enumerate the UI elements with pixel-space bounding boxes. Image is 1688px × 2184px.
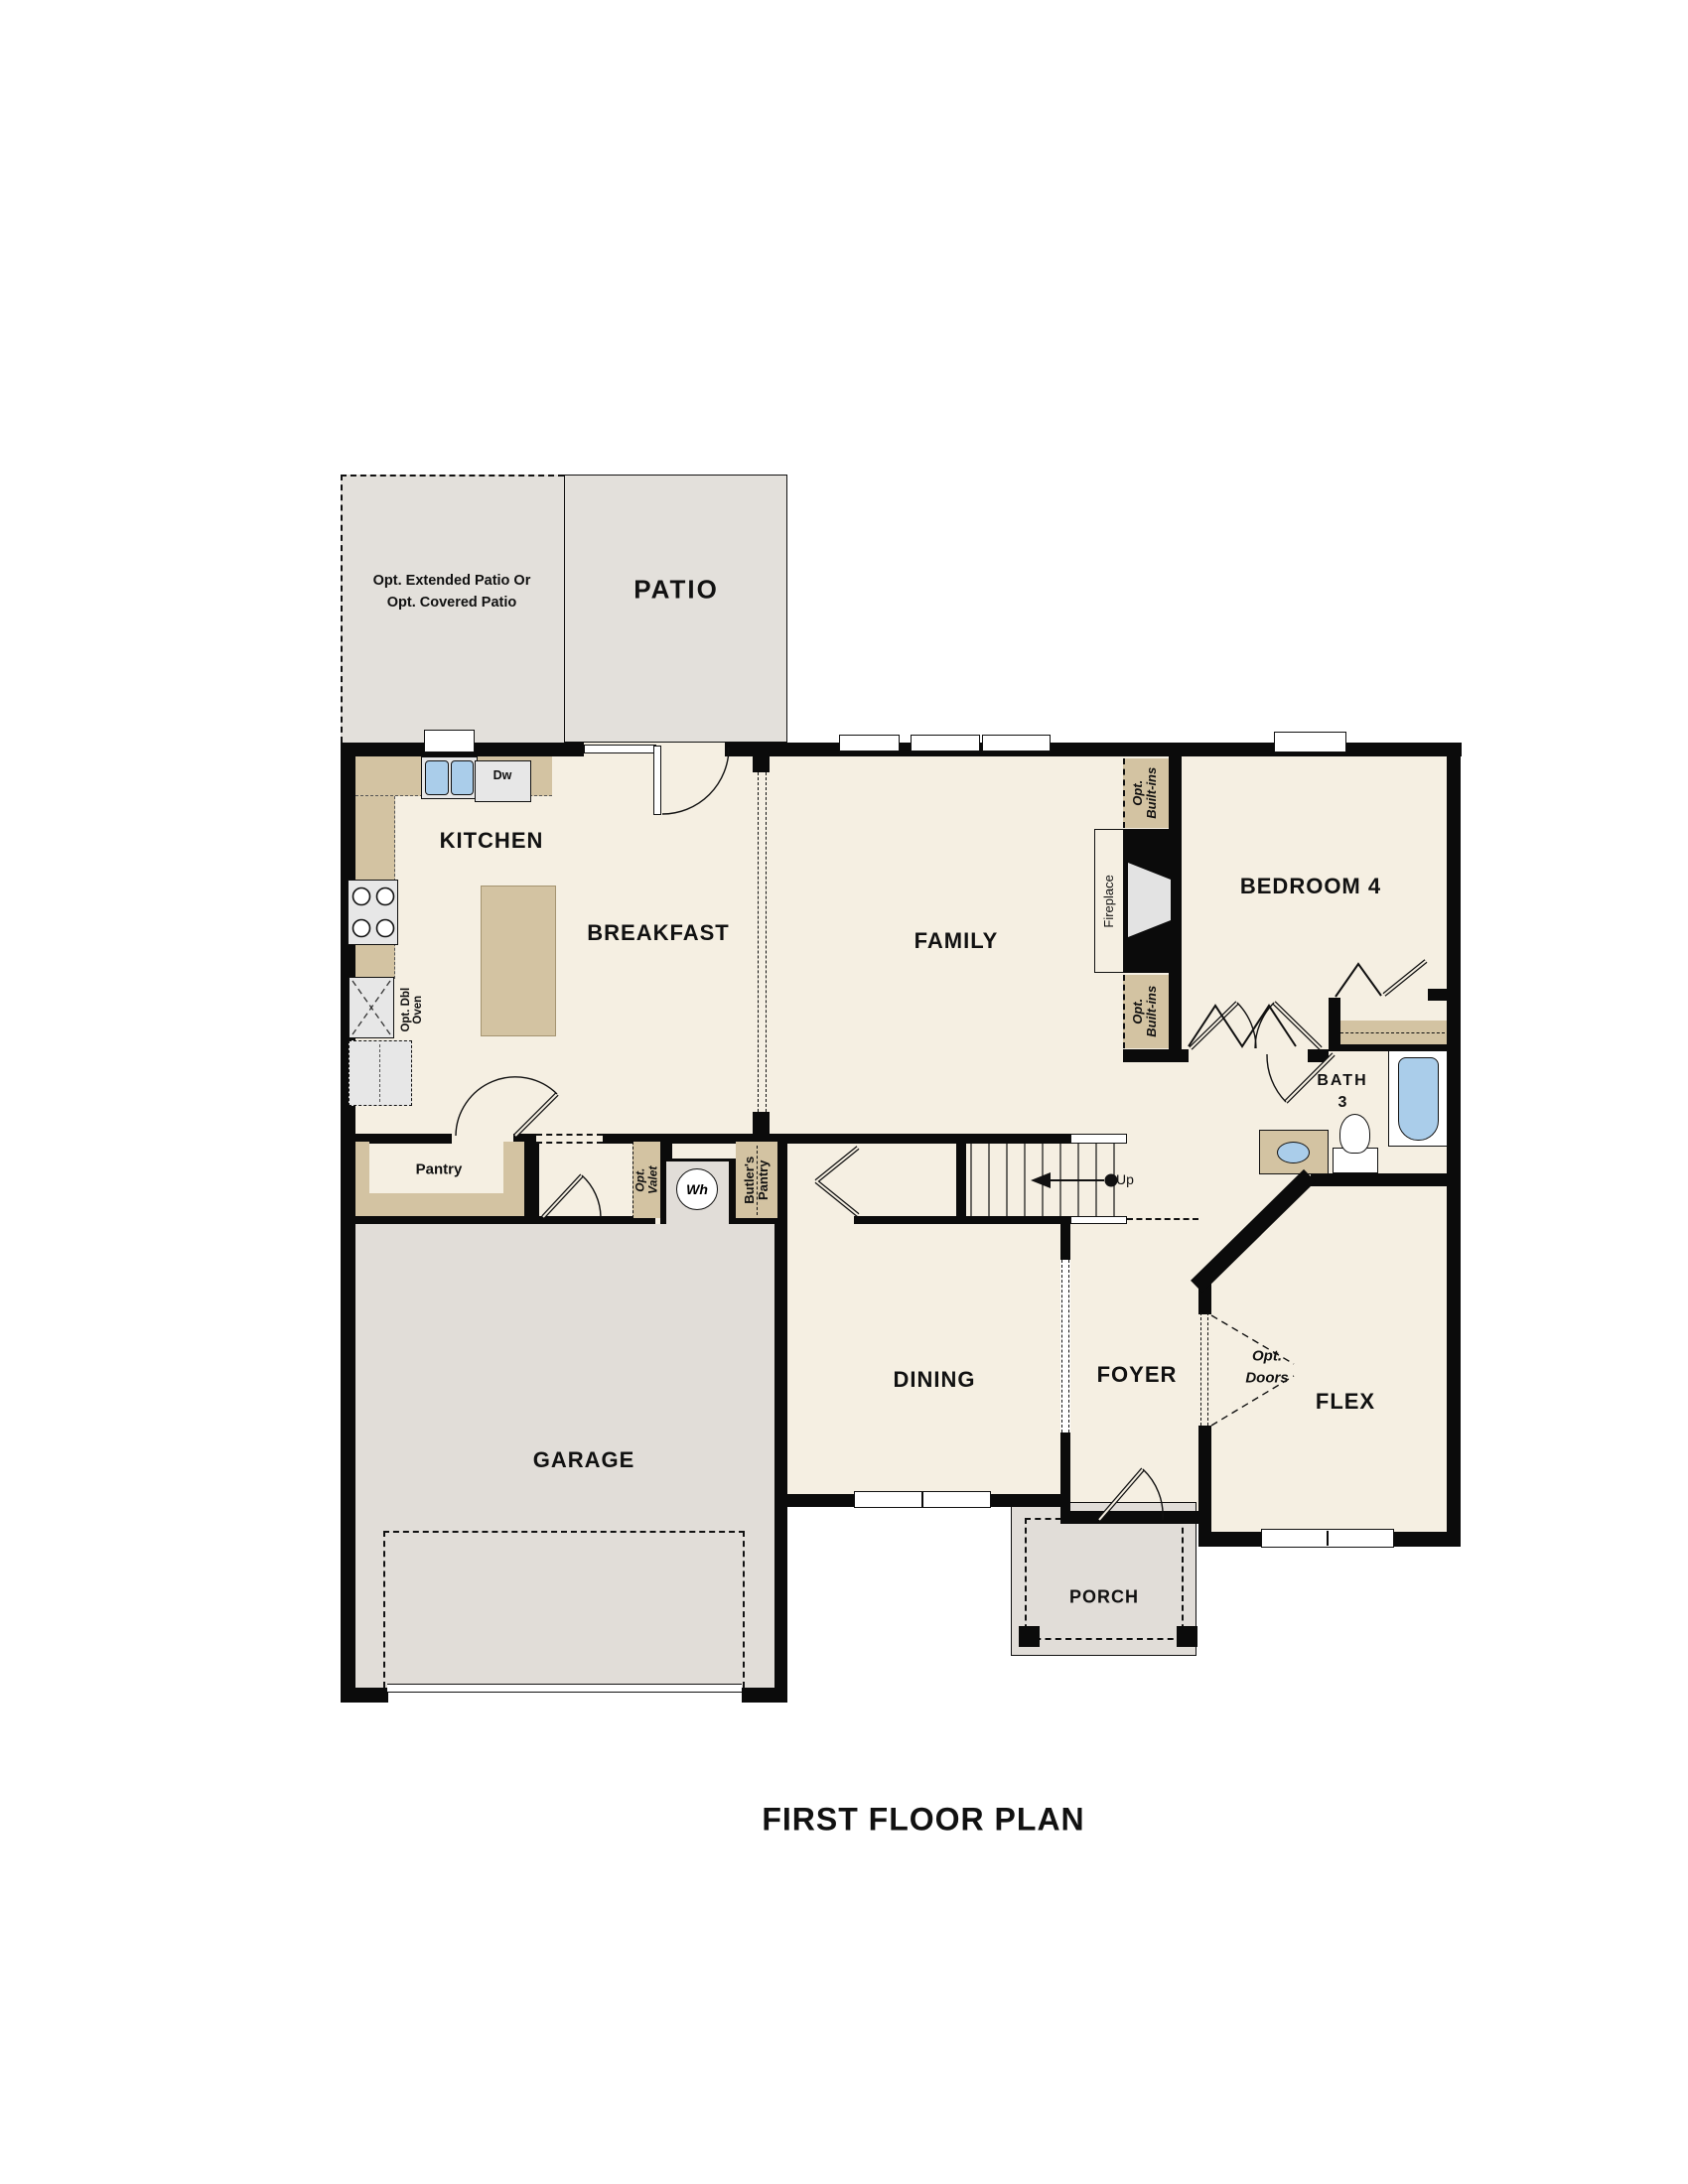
- porch-label: PORCH: [1069, 1587, 1139, 1608]
- bath3-label: 3: [1338, 1094, 1347, 1112]
- stair-rail-top: [1070, 1134, 1127, 1144]
- foyer-dining-dashed: [1068, 1260, 1069, 1433]
- opt-doors-label: Doors: [1245, 1370, 1288, 1387]
- flex-label: FLEX: [1316, 1389, 1375, 1415]
- window-kitchen: [424, 730, 475, 752]
- garage-label: GARAGE: [533, 1447, 635, 1473]
- foyer-dining-dashed: [1061, 1260, 1062, 1433]
- floor-plan-page: Wh: [0, 0, 1688, 2184]
- refrigerator-split-line: [379, 1044, 380, 1102]
- plan-title: FIRST FLOOR PLAN: [762, 1802, 1084, 1839]
- water-heater-label: Wh: [686, 1181, 708, 1197]
- dishwasher-label: Dw: [493, 768, 512, 782]
- stairs-up-label: Up: [1116, 1171, 1134, 1187]
- bath3-label: BATH: [1317, 1072, 1367, 1090]
- pantry-label: Pantry: [416, 1161, 463, 1178]
- wall-foyer-bottom: [1060, 1511, 1211, 1524]
- opening-dashed-hall: [536, 1134, 603, 1144]
- opt-builtins-label: Opt. Built-ins: [1121, 758, 1169, 828]
- wall-flex-left-top: [1198, 1279, 1211, 1314]
- floor-dining: [787, 1224, 1060, 1494]
- optional-patio-label: Opt. Extended Patio Or: [373, 573, 531, 589]
- stair-rail-bottom: [1070, 1216, 1127, 1224]
- door-leaf: [653, 746, 661, 815]
- opt-dbl-oven-label: Opt. Dbl Oven: [393, 977, 431, 1042]
- pantry-shelf-bottom: [355, 1193, 524, 1216]
- stove: [348, 880, 398, 945]
- sink-basin: [425, 760, 449, 795]
- porch-column: [1019, 1626, 1040, 1647]
- wall-fireplace-mass: [1123, 829, 1182, 973]
- wall-garage-top-left: [355, 1216, 655, 1224]
- kitchen-counter-left: [355, 796, 395, 882]
- patio-label: PATIO: [633, 575, 719, 606]
- breakfast-family-divider-dashed: [758, 772, 759, 1112]
- water-heater-circle: Wh: [676, 1168, 718, 1210]
- wall-pantry-right: [524, 1134, 539, 1224]
- opt-valet-label: Opt. Valet: [631, 1142, 662, 1218]
- wall-garage-bottom-left: [341, 1688, 388, 1703]
- wall-bath-bottom: [1311, 1173, 1461, 1186]
- hall-foyer-dashed: [1127, 1218, 1198, 1220]
- family-label: FAMILY: [914, 928, 999, 954]
- opt-doors-label: Opt.: [1252, 1348, 1282, 1365]
- wall-below-builtins: [1123, 1049, 1189, 1062]
- kitchen-counter-below-stove: [355, 943, 395, 979]
- breakfast-family-divider-dashed: [766, 772, 767, 1112]
- vanity-sink: [1277, 1142, 1310, 1163]
- wall-stair-closet-divider: [956, 1144, 966, 1216]
- wall-flex-left-bottom: [1198, 1426, 1211, 1535]
- window-family: [982, 735, 1051, 751]
- porch-dashed-outline: [1025, 1518, 1184, 1640]
- window-bedroom4: [1274, 732, 1346, 752]
- wall-closet-stub: [1428, 989, 1447, 1001]
- breakfast-label: BREAKFAST: [587, 920, 729, 946]
- wall-foyer-left-top: [1060, 1224, 1070, 1260]
- sink-basin: [451, 760, 474, 795]
- window-mullion: [1327, 1531, 1329, 1546]
- wall-stairs-bottom: [854, 1216, 1070, 1224]
- wall-butlers-right: [777, 1134, 787, 1224]
- fireplace-label: Fireplace: [1094, 829, 1124, 973]
- kitchen-island: [481, 886, 556, 1036]
- wall-divider-stub-bottom: [753, 1112, 770, 1134]
- window-family: [911, 735, 980, 751]
- patio-area: [564, 475, 787, 743]
- wall-garage-right: [774, 1224, 787, 1703]
- butlers-pantry-label: Butler's Pantry: [736, 1142, 777, 1218]
- bathtub: [1398, 1057, 1439, 1141]
- slider-door: [584, 745, 656, 753]
- opt-builtins-label: Opt. Built-ins: [1121, 975, 1169, 1048]
- window-family: [839, 735, 900, 751]
- garage-storage-dashed: [383, 1531, 745, 1688]
- floor-flex: [1198, 1224, 1447, 1532]
- opt-double-oven-cabinet: [349, 977, 394, 1038]
- bedroom4-label: BEDROOM 4: [1240, 874, 1381, 899]
- wall-foyer-left-bottom: [1060, 1433, 1070, 1524]
- opt-doors-dashed: [1200, 1312, 1201, 1426]
- foyer-label: FOYER: [1097, 1362, 1178, 1388]
- wall-divider-stub-top: [753, 743, 770, 772]
- refrigerator-space: [349, 1040, 412, 1106]
- optional-patio-label: Opt. Covered Patio: [387, 595, 517, 611]
- opt-doors-dashed: [1207, 1312, 1208, 1426]
- closet-rod-dashed: [1340, 1032, 1445, 1033]
- dining-label: DINING: [894, 1367, 976, 1393]
- wall-bedroom4-stub: [1308, 1049, 1329, 1062]
- window-mullion: [921, 1492, 923, 1507]
- kitchen-label: KITCHEN: [440, 828, 544, 854]
- toilet-bowl: [1339, 1114, 1370, 1154]
- wall-right: [1447, 743, 1461, 1547]
- porch-column: [1177, 1626, 1197, 1647]
